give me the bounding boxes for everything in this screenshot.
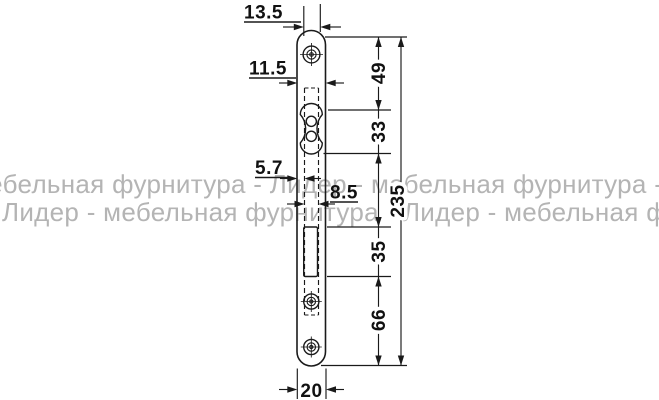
dim-66-label: 66: [369, 309, 390, 331]
screw-hole-bottom: [301, 337, 322, 358]
dim-235-label: 235: [388, 184, 409, 217]
dim-35-label: 35: [369, 240, 390, 262]
dim-5-7: 5.7: [255, 158, 321, 182]
screw-hole-top: [300, 43, 323, 66]
latch-slot: [304, 227, 318, 277]
dim-8-5-label: 8.5: [330, 183, 358, 204]
dim-49-label: 49: [369, 62, 390, 84]
technical-drawing-page: мебельная фурнитура - Лидер - мебельная …: [0, 0, 659, 400]
dim-235: 235: [388, 37, 409, 366]
dim-20: 20: [279, 369, 344, 400]
faceplate-outline: [297, 31, 326, 367]
dim-13-5-label: 13.5: [244, 3, 283, 24]
dim-33-label: 33: [369, 120, 390, 142]
dim-20-label: 20: [300, 381, 322, 400]
dim-5-7-label: 5.7: [255, 158, 283, 179]
dim-13-5: 13.5: [244, 3, 341, 37]
dim-11-5-label: 11.5: [249, 59, 287, 80]
lock-faceplate-drawing: 13.5 11.5 5.7 8.5: [0, 0, 659, 400]
